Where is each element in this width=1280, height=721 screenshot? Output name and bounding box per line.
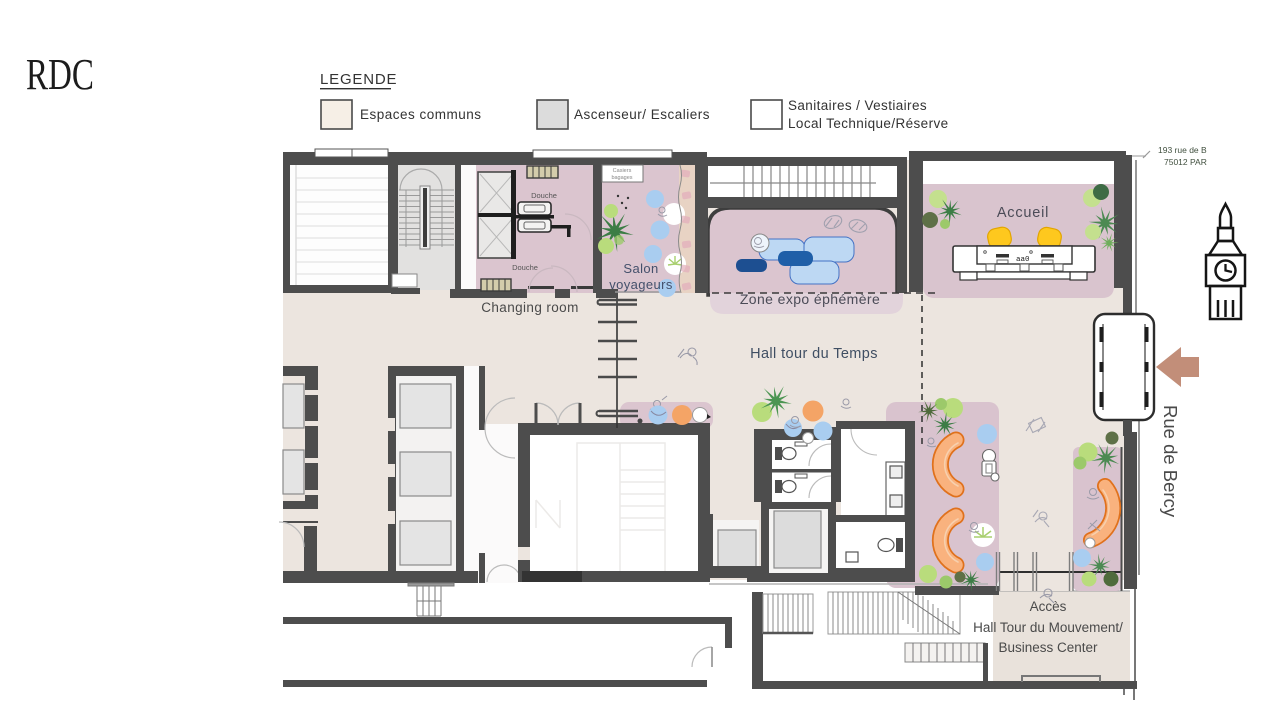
- svg-text:voyageurs: voyageurs: [609, 277, 673, 292]
- svg-text:Hall tour du Temps: Hall tour du Temps: [750, 346, 878, 362]
- svg-text:aa0: aa0: [1016, 256, 1030, 264]
- svg-text:Business Center: Business Center: [998, 640, 1098, 655]
- svg-text:bagages: bagages: [611, 175, 632, 181]
- svg-text:Rue de Bercy: Rue de Bercy: [1160, 405, 1181, 518]
- svg-text:Zone expo éphémère: Zone expo éphémère: [740, 291, 880, 307]
- svg-text:Local Technique/Réserve: Local Technique/Réserve: [788, 116, 949, 131]
- svg-text:Accès: Accès: [1030, 599, 1067, 614]
- svg-text:193 rue de B: 193 rue de B: [1158, 145, 1207, 155]
- svg-text:RDC: RDC: [26, 50, 94, 99]
- svg-text:Ascenseur/ Escaliers: Ascenseur/ Escaliers: [574, 107, 710, 122]
- svg-text:Espaces communs: Espaces communs: [360, 107, 482, 122]
- svg-text:Accueil: Accueil: [997, 205, 1049, 221]
- svg-text:Changing room: Changing room: [481, 300, 579, 315]
- svg-text:Douche: Douche: [531, 191, 557, 200]
- svg-text:Sanitaires / Vestiaires: Sanitaires / Vestiaires: [788, 98, 927, 113]
- svg-text:Casiers: Casiers: [613, 168, 632, 174]
- svg-text:LEGENDE: LEGENDE: [320, 71, 397, 88]
- svg-text:Salon: Salon: [623, 261, 658, 276]
- svg-text:75012 PAR: 75012 PAR: [1164, 157, 1207, 167]
- svg-text:Douche: Douche: [512, 263, 538, 272]
- svg-text:Hall Tour du Mouvement/: Hall Tour du Mouvement/: [973, 620, 1123, 635]
